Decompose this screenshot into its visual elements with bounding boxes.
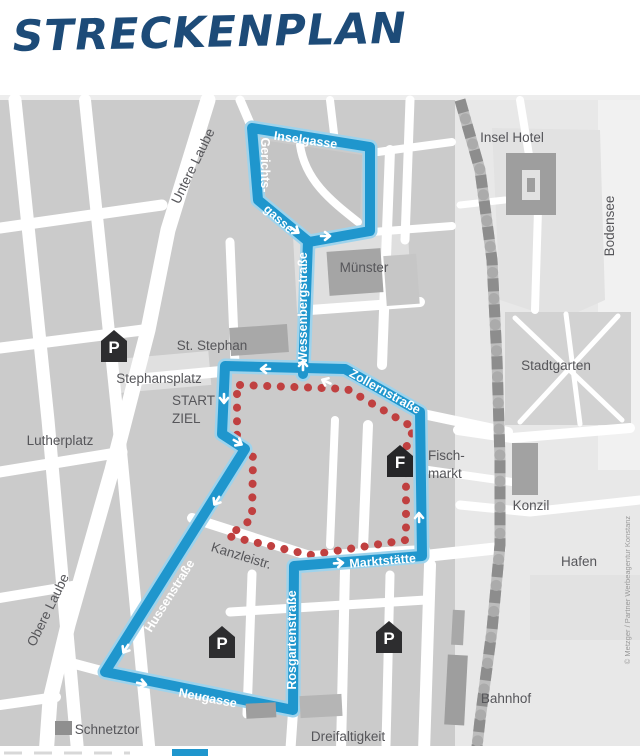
page-title: STRECKENPLAN — [8, 4, 410, 62]
konzil-building — [512, 443, 538, 495]
parking-letter: P — [108, 338, 119, 357]
label-lutherplatz: Lutherplatz — [27, 433, 94, 448]
bottom-edge — [0, 746, 640, 756]
map-credit: © Metzger / Partner Werbeagentur Konstan… — [623, 516, 632, 665]
streckenplan-page: STRECKENPLAN — [0, 0, 640, 756]
street-label-wessenbergstrasse: Wessenbergstraße — [296, 252, 310, 364]
label-fischmarkt-1: Fisch- — [428, 448, 465, 463]
label-bahnhof: Bahnhof — [481, 691, 532, 706]
label-muenster: Münster — [340, 260, 389, 275]
label-insel-hotel: Insel Hotel — [480, 130, 544, 145]
label-bodensee: Bodensee — [602, 196, 617, 257]
fischmarkt-letter: F — [395, 453, 405, 472]
label-schnetztor: Schnetztor — [75, 722, 140, 737]
parking-letter: P — [216, 634, 227, 653]
label-stephansplatz: Stephansplatz — [116, 371, 202, 386]
schnetztor-building — [55, 721, 72, 735]
label-st-stephan: St. Stephan — [177, 338, 248, 353]
label-start: START — [172, 393, 215, 408]
insel-hotel-building — [506, 153, 556, 215]
street-label-rosgartenstrasse: Rosgartenstraße — [285, 590, 299, 689]
label-konzil: Konzil — [513, 498, 550, 513]
bahnhof-building — [444, 655, 468, 726]
label-fischmarkt-2: markt — [428, 466, 462, 481]
parking-letter: P — [383, 629, 394, 648]
city-map: P P P F Untere Laube Inselgasse Gerichts… — [0, 95, 640, 756]
label-ziel: ZIEL — [172, 411, 201, 426]
legend-blue-swatch — [172, 749, 208, 756]
label-dreifaltigkeit: Dreifaltigkeit — [311, 729, 386, 744]
street-label-gerichts: Gerichts- — [258, 138, 272, 193]
label-hafen: Hafen — [561, 554, 597, 569]
label-stadtgarten: Stadtgarten — [521, 358, 591, 373]
